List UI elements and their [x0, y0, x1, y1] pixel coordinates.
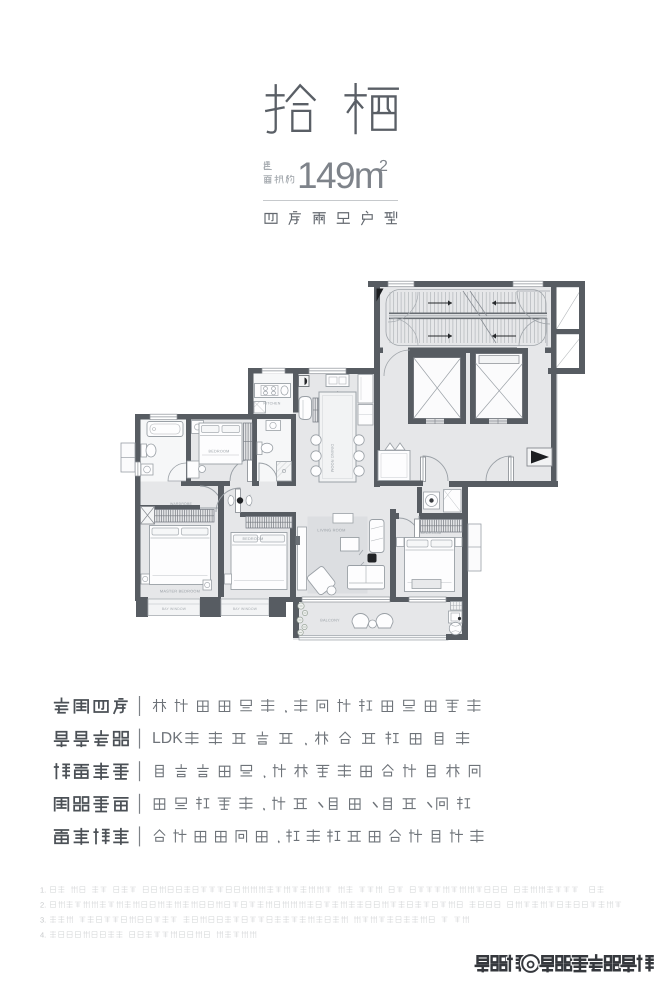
svg-text:BEDROOM: BEDROOM: [242, 537, 263, 541]
svg-text:MASTER BEDROOM: MASTER BEDROOM: [160, 589, 200, 594]
svg-text:WARDROBE: WARDROBE: [170, 502, 193, 506]
svg-text:LDK: LDK: [152, 730, 183, 747]
svg-text:BAY WINDOW: BAY WINDOW: [162, 607, 187, 611]
svg-text:BALCONY: BALCONY: [320, 619, 340, 623]
svg-text:DINING ROOM: DINING ROOM: [330, 444, 334, 472]
svg-text:BEDROOM: BEDROOM: [208, 450, 229, 454]
svg-text:1.: 1.: [40, 886, 46, 895]
svg-text:KITCHEN: KITCHEN: [263, 402, 280, 406]
svg-text:BAY WINDOW: BAY WINDOW: [233, 607, 258, 611]
svg-text:4.: 4.: [40, 931, 46, 940]
svg-text:2.: 2.: [40, 901, 46, 910]
svg-text:LIVING ROOM: LIVING ROOM: [317, 528, 345, 533]
svg-text:BEDROOM: BEDROOM: [420, 531, 441, 535]
svg-text:2: 2: [379, 158, 388, 175]
svg-text:149m: 149m: [297, 155, 383, 196]
svg-text:3.: 3.: [40, 916, 46, 925]
